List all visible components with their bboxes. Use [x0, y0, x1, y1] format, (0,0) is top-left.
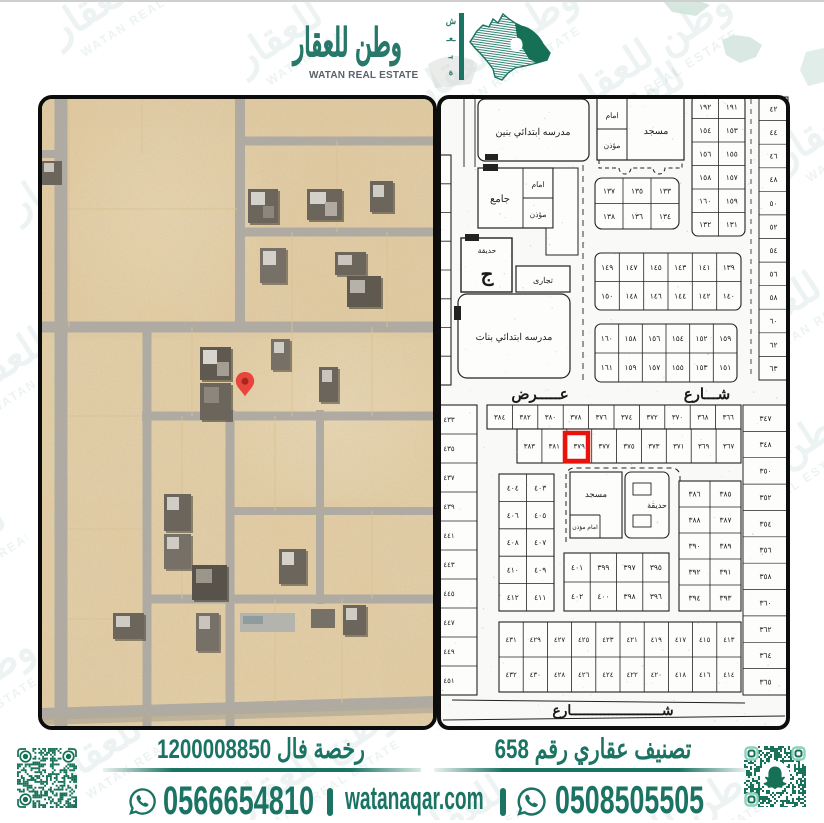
svg-text:١٥٩: ١٥٩ [624, 363, 636, 372]
svg-text:٤٢٣: ٤٢٣ [602, 637, 614, 644]
svg-text:١٥٩: ١٥٩ [719, 334, 731, 343]
svg-text:٤٢٤: ٤٢٤ [602, 672, 614, 679]
svg-text:٣٨٠: ٣٨٠ [545, 415, 556, 422]
svg-text:١٣٦: ١٣٦ [631, 212, 643, 221]
svg-text:٤٢١: ٤٢١ [626, 637, 637, 644]
svg-text:١٥٠: ١٥٠ [601, 291, 613, 300]
svg-text:٤١٨: ٤١٨ [675, 672, 687, 679]
svg-text:٤٢٦: ٤٢٦ [578, 672, 590, 679]
svg-text:شـــارع: شـــارع [684, 386, 731, 403]
svg-text:٣٩٤: ٣٩٤ [688, 594, 700, 603]
svg-text:٤٤٥: ٤٤٥ [443, 591, 455, 598]
svg-text:٤٠٧: ٤٠٧ [534, 538, 547, 547]
svg-text:مؤذن: مؤذن [530, 210, 547, 219]
svg-text:٤١٧: ٤١٧ [675, 637, 687, 644]
svg-text:٣٨٤: ٣٨٤ [494, 415, 506, 422]
svg-text:١٤٩: ١٤٩ [601, 263, 613, 272]
svg-text:١٥٣: ١٥٣ [726, 126, 739, 135]
svg-text:١٥٢: ١٥٢ [695, 334, 707, 343]
svg-text:١٣٨: ١٣٨ [603, 212, 616, 221]
svg-text:٤٨: ٤٨ [769, 175, 778, 184]
svg-text:٤٠٥: ٤٠٥ [534, 511, 546, 520]
svg-text:٣٩١: ٣٩١ [719, 568, 731, 577]
svg-text:١٦٠: ١٦٠ [699, 197, 711, 206]
svg-text:٤٠٩: ٤٠٩ [534, 566, 546, 575]
svg-text:١٣٣: ١٣٣ [659, 187, 672, 196]
svg-text:١٥٧: ١٥٧ [726, 173, 739, 182]
svg-text:٤١٢: ٤١٢ [507, 593, 519, 602]
svg-text:٦٣: ٦٣ [769, 364, 778, 373]
svg-text:جامع: جامع [490, 194, 510, 205]
svg-text:٤٣٥: ٤٣٥ [443, 446, 455, 453]
svg-text:١٤٤: ١٤٤ [674, 291, 686, 300]
svg-text:٣٧٨: ٣٧٨ [570, 415, 582, 422]
svg-text:مدرسه ابتدائي بنين: مدرسه ابتدائي بنين [496, 127, 571, 138]
svg-text:٤٤: ٤٤ [769, 128, 777, 137]
svg-text:٣٥٨: ٣٥٨ [759, 572, 772, 581]
svg-text:٤٠٤: ٤٠٤ [507, 483, 519, 492]
svg-text:٣٦٦: ٣٦٦ [723, 415, 735, 422]
svg-text:٤١٩: ٤١٩ [651, 637, 663, 644]
svg-text:٣٨٣: ٣٨٣ [524, 444, 536, 451]
svg-text:٤٠٣: ٤٠٣ [534, 483, 547, 492]
svg-text:١٥٨: ١٥٨ [699, 173, 712, 182]
svg-text:٣٨٢: ٣٨٢ [519, 415, 531, 422]
svg-text:٤١١: ٤١١ [534, 593, 546, 602]
svg-text:٣٥٦: ٣٥٦ [759, 546, 771, 555]
svg-text:مسجد: مسجد [644, 126, 669, 137]
svg-text:٣٨٥: ٣٨٥ [719, 490, 731, 499]
svg-text:عـــــرض: عـــــرض [511, 386, 568, 403]
svg-text:١٣٧: ١٣٧ [603, 187, 616, 196]
svg-text:امام مؤذن: امام مؤذن [572, 524, 598, 531]
svg-text:امام: امام [605, 111, 618, 120]
svg-text:٣٩٩: ٣٩٩ [597, 563, 609, 572]
svg-text:٤٢٧: ٤٢٧ [554, 637, 566, 644]
svg-text:٤٣٧: ٤٣٧ [443, 475, 455, 482]
svg-text:٣٨٦: ٣٨٦ [688, 490, 700, 499]
svg-text:٤٢٥: ٤٢٥ [578, 637, 590, 644]
svg-text:٤٢٠: ٤٢٠ [651, 672, 662, 679]
svg-text:٣٨٩: ٣٨٩ [719, 542, 731, 551]
svg-text:٣٥٠: ٣٥٠ [759, 467, 771, 476]
svg-text:١٤٦: ١٤٦ [650, 291, 662, 300]
svg-text:٤٣٣: ٤٣٣ [443, 417, 455, 424]
svg-text:٣٩٧: ٣٩٧ [624, 563, 637, 572]
svg-text:١٣٥: ١٣٥ [631, 187, 643, 196]
svg-text:مدرسه ابتدائي بنات: مدرسه ابتدائي بنات [476, 332, 553, 343]
svg-text:١٣٩: ١٣٩ [723, 263, 735, 272]
svg-text:٣٥٤: ٣٥٤ [759, 519, 771, 528]
svg-text:٣٧٠: ٣٧٠ [672, 415, 683, 422]
svg-text:٣٦٠: ٣٦٠ [759, 598, 771, 607]
svg-text:٤٥١: ٤٥١ [443, 678, 454, 685]
svg-text:٦٢: ٦٢ [769, 340, 777, 349]
svg-text:٣٧٧: ٣٧٧ [598, 444, 610, 451]
svg-text:١٥٦: ١٥٦ [648, 334, 660, 343]
svg-text:٣٦٨: ٣٦٨ [697, 415, 709, 422]
svg-text:٤٢٨: ٤٢٨ [554, 672, 566, 679]
svg-text:٤٠٦: ٤٠٦ [507, 511, 519, 520]
svg-text:١٥٧: ١٥٧ [648, 363, 661, 372]
svg-text:١٤٢: ١٤٢ [698, 291, 710, 300]
svg-text:٣٤٨: ٣٤٨ [759, 440, 772, 449]
svg-text:١٥١: ١٥١ [719, 363, 731, 372]
svg-text:٥٦: ٥٦ [769, 270, 777, 279]
svg-text:١٥٤: ١٥٤ [672, 334, 684, 343]
svg-text:٤٢٢: ٤٢٢ [626, 672, 638, 679]
svg-text:١٤١: ١٤١ [698, 263, 710, 272]
svg-text:مسجد: مسجد [585, 489, 608, 499]
svg-text:شــــــــــــــــــــــارع: شــــــــــــــــــــــارع [552, 702, 673, 719]
svg-text:١٣٤: ١٣٤ [659, 212, 671, 221]
svg-text:٤٠٢: ٤٠٢ [571, 592, 583, 601]
svg-text:٤٤٩: ٤٤٩ [443, 649, 455, 656]
svg-text:٤٣١: ٤٣١ [505, 637, 516, 644]
svg-text:٣٨٧: ٣٨٧ [719, 516, 732, 525]
svg-text:حديقة: حديقة [647, 501, 667, 510]
svg-text:٤٣٠: ٤٣٠ [530, 672, 541, 679]
svg-text:٣٦٩: ٣٦٩ [698, 444, 710, 451]
svg-text:١٤٠: ١٤٠ [723, 291, 735, 300]
svg-text:٣٩٨: ٣٩٨ [624, 592, 637, 601]
svg-text:٤٤٣: ٤٤٣ [443, 562, 455, 569]
svg-text:٣٧١: ٣٧١ [673, 444, 684, 451]
svg-text:١٤٧: ١٤٧ [625, 263, 638, 272]
svg-text:١٤٥: ١٤٥ [650, 263, 662, 272]
svg-text:٤٦: ٤٦ [769, 152, 777, 161]
svg-text:١٥٣: ١٥٣ [695, 363, 708, 372]
svg-text:٥٤: ٥٤ [769, 246, 777, 255]
svg-text:١٥٩: ١٥٩ [726, 197, 738, 206]
svg-text:مؤذن: مؤذن [604, 141, 621, 150]
svg-text:٤١٥: ٤١٥ [699, 637, 711, 644]
svg-text:٦٠: ٦٠ [769, 317, 777, 326]
svg-text:٤٠٠: ٤٠٠ [597, 592, 609, 601]
svg-text:٥٢: ٥٢ [769, 222, 777, 231]
svg-text:٣٩٢: ٣٩٢ [688, 568, 700, 577]
svg-text:٣٧٥: ٣٧٥ [623, 444, 635, 451]
svg-text:٣٩٥: ٣٩٥ [650, 563, 662, 572]
svg-text:٣٧٩: ٣٧٩ [574, 444, 586, 451]
svg-text:٣٨٨: ٣٨٨ [688, 516, 701, 525]
svg-text:١٣٢: ١٣٢ [699, 220, 711, 229]
svg-text:٤١٦: ٤١٦ [699, 672, 711, 679]
svg-text:٣٨١: ٣٨١ [549, 444, 560, 451]
svg-text:١٩١: ١٩١ [726, 102, 738, 111]
svg-text:٣٧٣: ٣٧٣ [648, 444, 660, 451]
svg-text:ج: ج [481, 264, 495, 287]
svg-text:٤١٤: ٤١٤ [723, 672, 735, 679]
svg-text:٥٠: ٥٠ [769, 199, 777, 208]
svg-text:٣٦٢: ٣٦٢ [759, 625, 771, 634]
svg-text:٣٩٦: ٣٩٦ [650, 592, 662, 601]
svg-text:٣٥٢: ٣٥٢ [759, 493, 771, 502]
svg-text:١٩٢: ١٩٢ [699, 102, 711, 111]
svg-text:٣٧٦: ٣٧٦ [596, 415, 608, 422]
svg-text:تجارى: تجارى [533, 276, 553, 285]
svg-text:حديقة: حديقة [478, 246, 497, 255]
svg-text:٤١٣: ٤١٣ [723, 637, 735, 644]
svg-text:١٦١: ١٦١ [601, 363, 613, 372]
svg-text:١٦٠: ١٦٠ [601, 334, 613, 343]
svg-text:٣٦٥: ٣٦٥ [759, 678, 771, 687]
svg-text:٤٤٧: ٤٤٧ [443, 620, 455, 627]
svg-text:١٥٨: ١٥٨ [624, 334, 637, 343]
svg-text:٣٧٤: ٣٧٤ [621, 415, 633, 422]
svg-text:٤١٠: ٤١٠ [507, 566, 519, 575]
svg-text:٣٧٢: ٣٧٢ [646, 415, 658, 422]
svg-text:٤٢٩: ٤٢٩ [530, 637, 542, 644]
svg-text:٤٤١: ٤٤١ [443, 533, 454, 540]
svg-text:٤٠٨: ٤٠٨ [507, 538, 520, 547]
svg-text:٣٩٣: ٣٩٣ [719, 594, 732, 603]
svg-text:١٣١: ١٣١ [726, 220, 738, 229]
svg-text:٣٦٧: ٣٦٧ [723, 444, 735, 451]
svg-text:٤٣٢: ٤٣٢ [505, 672, 517, 679]
svg-text:٤٢: ٤٢ [769, 105, 777, 114]
svg-text:١٥٤: ١٥٤ [699, 126, 711, 135]
svg-text:١٥٥: ١٥٥ [672, 363, 684, 372]
svg-text:١٤٣: ١٤٣ [674, 263, 687, 272]
svg-text:١٤٨: ١٤٨ [625, 291, 638, 300]
svg-text:٥٨: ٥٨ [769, 293, 778, 302]
svg-text:٤٣٩: ٤٣٩ [443, 504, 455, 511]
svg-text:٣٦٤: ٣٦٤ [759, 651, 771, 660]
svg-text:٣٩٠: ٣٩٠ [688, 542, 700, 551]
svg-text:٣٤٧: ٣٤٧ [759, 414, 772, 423]
svg-text:٤٠١: ٤٠١ [571, 563, 583, 572]
svg-text:١٥٥: ١٥٥ [726, 150, 738, 159]
